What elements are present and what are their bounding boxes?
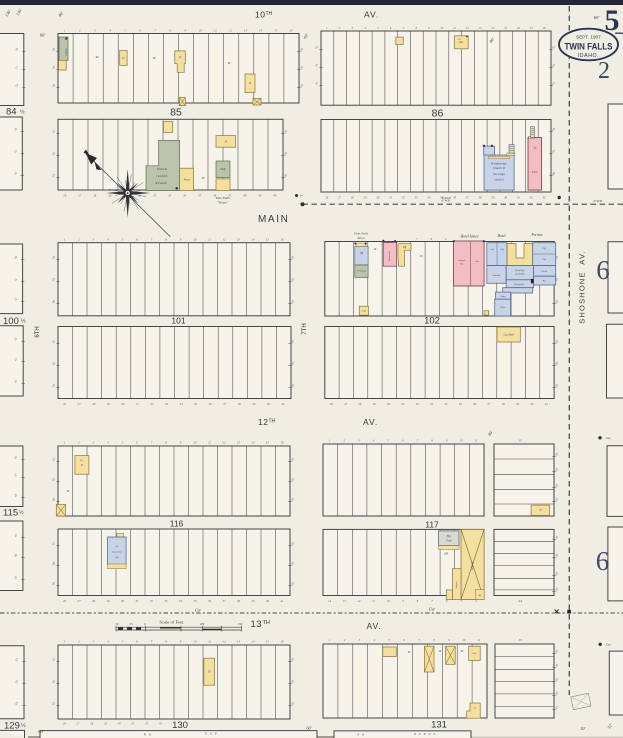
- svg-text:‘B’: ‘B’: [533, 147, 536, 150]
- svg-text:50': 50': [580, 726, 585, 731]
- svg-text:50: 50: [116, 622, 120, 626]
- svg-text:w: w: [408, 649, 411, 654]
- svg-text:½: ½: [19, 509, 24, 516]
- svg-text:13: 13: [479, 26, 483, 30]
- svg-text:6: 6: [596, 546, 610, 576]
- svg-text:39: 39: [258, 194, 262, 198]
- svg-text:35: 35: [459, 402, 463, 406]
- svg-text:101: 101: [171, 316, 185, 326]
- svg-text:31: 31: [389, 196, 393, 200]
- svg-text:10: 10: [199, 29, 203, 33]
- svg-text:30: 30: [387, 402, 391, 406]
- svg-text:Ann: Ann: [474, 260, 480, 263]
- svg-text:26: 26: [63, 402, 67, 406]
- svg-text:86: 86: [432, 108, 444, 120]
- svg-text:w: w: [374, 246, 377, 251]
- svg-text:150: 150: [238, 622, 243, 626]
- svg-text:41: 41: [281, 599, 285, 603]
- svg-text:D Rm: D Rm: [499, 307, 506, 309]
- svg-text:½: ½: [21, 722, 26, 729]
- svg-text:26: 26: [330, 402, 334, 406]
- svg-text:TWIN FALLS: TWIN FALLS: [565, 42, 613, 52]
- svg-text:& Family: & Family: [155, 181, 167, 185]
- svg-text:27: 27: [76, 722, 80, 726]
- svg-text:News: News: [356, 236, 365, 240]
- svg-text:13: 13: [251, 619, 263, 630]
- svg-text:40: 40: [530, 402, 534, 406]
- svg-text:34: 34: [444, 402, 448, 406]
- svg-text:Bar: Bar: [543, 281, 547, 283]
- svg-text:35: 35: [194, 402, 198, 406]
- svg-text:14: 14: [259, 29, 263, 33]
- svg-text:10: 10: [387, 599, 391, 603]
- svg-text:Laundry: Laundry: [492, 275, 502, 277]
- svg-text:37: 37: [466, 196, 470, 200]
- svg-text:36: 36: [453, 196, 457, 200]
- svg-text:w: w: [461, 648, 464, 653]
- svg-text:131: 131: [431, 720, 447, 731]
- svg-text:17: 17: [530, 26, 534, 30]
- svg-text:32: 32: [150, 599, 154, 603]
- svg-text:Livery: Livery: [470, 561, 474, 571]
- svg-text:w: w: [201, 175, 204, 180]
- svg-text:12: 12: [229, 29, 233, 33]
- svg-text:Furn: Furn: [183, 177, 191, 181]
- svg-text:40: 40: [273, 194, 277, 198]
- svg-text:10: 10: [194, 640, 198, 644]
- svg-text:TH: TH: [266, 11, 273, 17]
- svg-text:Off: Off: [490, 248, 493, 251]
- svg-text:39: 39: [252, 599, 256, 603]
- svg-text:E X P O S.: E X P O S.: [413, 732, 438, 736]
- svg-text:38: 38: [243, 194, 247, 198]
- svg-text:Gas: Gas: [606, 437, 611, 440]
- svg-text:w: w: [95, 54, 98, 59]
- svg-text:6: 6: [596, 255, 610, 285]
- svg-text:Hotel: Hotel: [497, 234, 506, 238]
- svg-text:Crockery: Crockery: [156, 174, 168, 178]
- svg-text:33: 33: [165, 402, 169, 406]
- svg-text:28: 28: [92, 402, 96, 406]
- svg-text:Flour &: Flour &: [156, 167, 168, 171]
- svg-text:30: 30: [118, 722, 122, 726]
- svg-text:36: 36: [209, 402, 213, 406]
- svg-text:Car: Car: [195, 609, 201, 613]
- svg-text:100: 100: [3, 316, 19, 327]
- svg-text:w: w: [67, 488, 70, 493]
- svg-text:13: 13: [244, 29, 248, 33]
- svg-text:27: 27: [344, 402, 348, 406]
- svg-text:38: 38: [479, 196, 483, 200]
- svg-text:Rev: Rev: [458, 41, 464, 44]
- svg-text:39: 39: [491, 196, 495, 200]
- svg-text:28: 28: [90, 722, 94, 726]
- svg-text:12: 12: [258, 417, 268, 427]
- svg-text:26: 26: [63, 599, 67, 603]
- svg-text:289: 289: [444, 553, 449, 556]
- svg-text:Off: Off: [542, 258, 545, 261]
- svg-text:N O: N O: [356, 733, 365, 737]
- svg-text:Perrine: Perrine: [531, 233, 543, 237]
- svg-text:Off: Off: [115, 556, 118, 559]
- svg-text:29: 29: [108, 194, 112, 198]
- svg-text:(not comp): (not comp): [493, 173, 504, 176]
- svg-text:26: 26: [325, 196, 329, 200]
- svg-text:31: 31: [131, 722, 135, 726]
- svg-text:12: 12: [223, 640, 227, 644]
- svg-text:27: 27: [338, 196, 342, 200]
- svg-text:16: 16: [289, 29, 293, 33]
- svg-text:32: 32: [153, 194, 157, 198]
- svg-text:29: 29: [364, 196, 368, 200]
- svg-text:36: 36: [473, 402, 477, 406]
- svg-text:12: 12: [466, 26, 470, 30]
- svg-text:10: 10: [255, 10, 265, 20]
- svg-text:w: w: [152, 55, 155, 60]
- svg-text:11: 11: [475, 439, 478, 443]
- svg-text:Rm: Rm: [459, 263, 463, 266]
- svg-text:6TH: 6TH: [35, 326, 41, 337]
- svg-text:Presbyterian: Presbyterian: [490, 162, 507, 166]
- svg-text:12: 12: [223, 441, 227, 445]
- svg-text:w: w: [227, 60, 230, 65]
- svg-text:16: 16: [517, 26, 521, 30]
- svg-text:Restaurant: Restaurant: [388, 251, 391, 262]
- svg-text:100: 100: [200, 622, 205, 626]
- svg-text:MAIN: MAIN: [258, 214, 289, 225]
- svg-text:10: 10: [440, 26, 444, 30]
- svg-text:116: 116: [170, 519, 184, 529]
- svg-text:29: 29: [107, 402, 111, 406]
- svg-text:43: 43: [543, 196, 547, 200]
- svg-text:13: 13: [237, 441, 241, 445]
- svg-text:and Lobby: and Lobby: [515, 274, 524, 276]
- svg-text:15: 15: [504, 26, 508, 30]
- svg-text:29: 29: [373, 402, 377, 406]
- svg-text:33: 33: [165, 599, 169, 603]
- svg-text:40: 40: [266, 599, 270, 603]
- svg-text:Hay: Hay: [446, 535, 452, 538]
- svg-text:Gas Shed: Gas Shed: [504, 333, 515, 336]
- svg-text:33: 33: [415, 196, 419, 200]
- svg-text:27: 27: [78, 194, 82, 198]
- svg-text:28: 28: [358, 402, 362, 406]
- svg-text:32: 32: [402, 196, 406, 200]
- svg-text:115: 115: [3, 508, 18, 519]
- svg-text:Pantry: Pantry: [499, 295, 506, 298]
- svg-text:32: 32: [416, 402, 420, 406]
- svg-text:38: 38: [502, 402, 506, 406]
- svg-text:S.T.O.: S.T.O.: [532, 171, 539, 174]
- svg-text:15: 15: [266, 441, 270, 445]
- svg-text:34: 34: [179, 599, 183, 603]
- svg-text:102: 102: [424, 316, 440, 327]
- svg-text:26: 26: [63, 722, 67, 726]
- svg-text:41: 41: [282, 402, 286, 406]
- svg-text:30: 30: [121, 402, 125, 406]
- svg-text:10: 10: [460, 439, 464, 443]
- svg-text:Lodging: Lodging: [66, 47, 68, 56]
- svg-text:Hotel Off: Hotel Off: [514, 269, 524, 272]
- svg-text:N O: N O: [143, 732, 152, 736]
- svg-text:2: 2: [598, 58, 610, 84]
- svg-text:31: 31: [136, 402, 140, 406]
- svg-text:31: 31: [136, 599, 140, 603]
- svg-text:41: 41: [517, 196, 521, 200]
- svg-text:AV.: AV.: [363, 417, 378, 427]
- svg-text:31: 31: [401, 402, 405, 406]
- svg-text:Car: Car: [429, 608, 435, 612]
- svg-text:½: ½: [20, 109, 25, 116]
- svg-text:30: 30: [121, 599, 125, 603]
- svg-text:14: 14: [252, 441, 256, 445]
- svg-text:15: 15: [266, 238, 270, 242]
- svg-text:15: 15: [518, 439, 522, 443]
- svg-text:11: 11: [477, 638, 480, 642]
- svg-text:38: 38: [237, 599, 241, 603]
- svg-text:14: 14: [328, 599, 332, 603]
- svg-text:D: D: [121, 57, 124, 60]
- svg-text:Feed: Feed: [445, 540, 452, 543]
- svg-text:60': 60': [306, 726, 311, 731]
- svg-text:130: 130: [172, 720, 188, 731]
- svg-text:Twin Falls: Twin Falls: [354, 232, 369, 236]
- svg-text:37: 37: [223, 599, 227, 603]
- svg-text:Wagons: Wagons: [456, 581, 458, 588]
- svg-text:D: D: [178, 56, 181, 59]
- svg-text:28: 28: [351, 196, 355, 200]
- svg-text:SEPT. 1907: SEPT. 1907: [576, 35, 601, 40]
- svg-text:28: 28: [92, 599, 96, 603]
- svg-text:IDAHO.: IDAHO.: [578, 53, 599, 59]
- svg-text:11: 11: [214, 29, 217, 33]
- svg-text:Off: Off: [542, 247, 545, 250]
- svg-text:E X P.: E X P.: [204, 731, 219, 735]
- svg-text:Off: Off: [500, 248, 503, 251]
- svg-text:35: 35: [198, 194, 202, 198]
- svg-text:13: 13: [343, 599, 347, 603]
- svg-text:42: 42: [530, 196, 534, 200]
- svg-text:14: 14: [491, 26, 495, 30]
- svg-text:30: 30: [376, 196, 380, 200]
- svg-text:16: 16: [281, 640, 285, 644]
- svg-text:D: D: [80, 464, 83, 467]
- svg-text:Hotel Annex: Hotel Annex: [460, 235, 479, 239]
- svg-text:18: 18: [543, 26, 547, 30]
- svg-text:Twin Falls: Twin Falls: [215, 196, 230, 200]
- svg-text:34: 34: [180, 402, 184, 406]
- svg-text:40: 40: [267, 402, 271, 406]
- svg-text:15: 15: [266, 640, 270, 644]
- svg-text:w: w: [439, 648, 442, 653]
- svg-text:34: 34: [183, 194, 187, 198]
- svg-text:14: 14: [252, 640, 256, 644]
- svg-text:27: 27: [78, 402, 82, 406]
- svg-text:7TH: 7TH: [302, 323, 308, 334]
- svg-text:32: 32: [150, 402, 154, 406]
- svg-text:27: 27: [78, 599, 82, 603]
- svg-text:10: 10: [462, 638, 466, 642]
- svg-text:34: 34: [428, 196, 432, 200]
- svg-text:6″W.P.: 6″W.P.: [442, 199, 451, 203]
- svg-text:Church D: Church D: [493, 166, 506, 170]
- svg-text:TH: TH: [263, 620, 270, 626]
- svg-text:Gar: Gar: [472, 652, 476, 655]
- svg-text:13: 13: [518, 638, 522, 642]
- svg-text:13: 13: [237, 640, 241, 644]
- svg-text:37: 37: [223, 402, 227, 406]
- svg-text:15: 15: [274, 29, 278, 33]
- svg-text:Scale of Feet.: Scale of Feet.: [159, 620, 184, 625]
- svg-text:85: 85: [170, 107, 182, 119]
- svg-text:33: 33: [168, 194, 172, 198]
- svg-text:14: 14: [252, 238, 256, 242]
- svg-text:26: 26: [63, 194, 67, 198]
- svg-text:Parlor: Parlor: [540, 271, 547, 273]
- svg-text:33: 33: [159, 722, 163, 726]
- svg-text:29: 29: [107, 599, 111, 603]
- svg-text:TH: TH: [269, 419, 276, 425]
- svg-text:25: 25: [130, 622, 134, 626]
- svg-text:13: 13: [237, 238, 241, 242]
- svg-text:35: 35: [194, 599, 198, 603]
- svg-text:32: 32: [145, 722, 149, 726]
- svg-text:39: 39: [516, 402, 520, 406]
- svg-text:33: 33: [430, 402, 434, 406]
- svg-text:10: 10: [194, 238, 198, 242]
- svg-text:½: ½: [21, 318, 26, 325]
- svg-text:not fin’d: not fin’d: [495, 179, 505, 182]
- svg-text:1½: 1½: [458, 38, 461, 41]
- svg-text:44: 44: [518, 599, 522, 603]
- svg-text:6+: 6+: [300, 195, 303, 198]
- svg-text:36: 36: [208, 599, 212, 603]
- svg-text:AV.: AV.: [367, 621, 382, 631]
- svg-text:39: 39: [252, 402, 256, 406]
- svg-text:16: 16: [281, 238, 285, 242]
- svg-text:40: 40: [504, 196, 508, 200]
- svg-text:29: 29: [104, 722, 108, 726]
- svg-text:12: 12: [357, 599, 361, 603]
- svg-text:AV.: AV.: [364, 10, 379, 20]
- svg-text:10: 10: [194, 441, 198, 445]
- svg-text:12: 12: [223, 238, 227, 242]
- svg-text:6″W.P.: 6″W.P.: [594, 199, 603, 203]
- svg-text:38: 38: [238, 402, 242, 406]
- svg-text:Dining Rm: Dining Rm: [513, 284, 524, 286]
- svg-text:Coal: Coal: [362, 310, 367, 313]
- svg-text:37: 37: [487, 402, 491, 406]
- svg-text:SHOSHONE AV.: SHOSHONE AV.: [578, 250, 587, 324]
- svg-text:Printing: Printing: [357, 270, 367, 273]
- svg-text:Creamery: Creamery: [112, 551, 122, 554]
- svg-text:“Times”: “Times”: [217, 200, 229, 205]
- svg-text:84: 84: [6, 107, 17, 118]
- svg-text:41: 41: [545, 402, 549, 406]
- svg-text:Pndy: Pndy: [219, 168, 226, 171]
- svg-text:16: 16: [420, 254, 424, 258]
- svg-text:129: 129: [4, 720, 20, 731]
- svg-text:117: 117: [425, 520, 439, 530]
- svg-text:Gas: Gas: [606, 644, 611, 647]
- svg-text:D: D: [248, 82, 251, 85]
- svg-text:28: 28: [93, 194, 97, 198]
- svg-text:16: 16: [281, 441, 285, 445]
